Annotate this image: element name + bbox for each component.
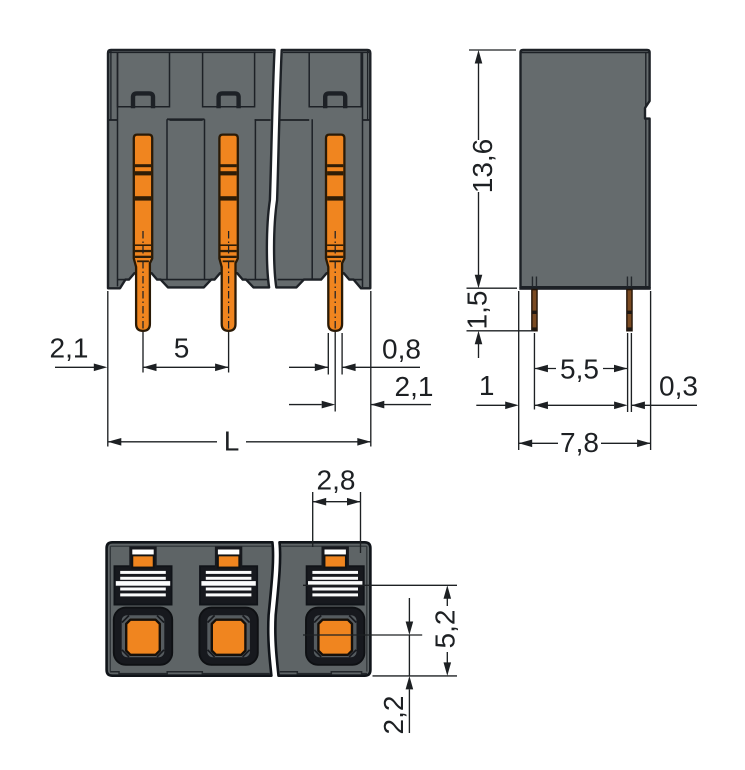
svg-text:0,3: 0,3	[659, 371, 698, 402]
svg-text:7,8: 7,8	[560, 427, 599, 458]
svg-text:5: 5	[174, 333, 190, 364]
svg-text:1,5: 1,5	[462, 291, 493, 330]
svg-text:5,2: 5,2	[430, 610, 461, 649]
svg-text:1: 1	[479, 370, 495, 401]
svg-text:5,5: 5,5	[560, 354, 599, 385]
svg-text:0,8: 0,8	[382, 334, 421, 365]
svg-text:2,2: 2,2	[378, 696, 409, 735]
svg-text:L: L	[224, 426, 240, 457]
svg-text:2,8: 2,8	[317, 465, 356, 496]
svg-text:2,1: 2,1	[395, 371, 434, 402]
svg-text:13,6: 13,6	[467, 139, 498, 194]
svg-text:2,1: 2,1	[50, 333, 89, 364]
